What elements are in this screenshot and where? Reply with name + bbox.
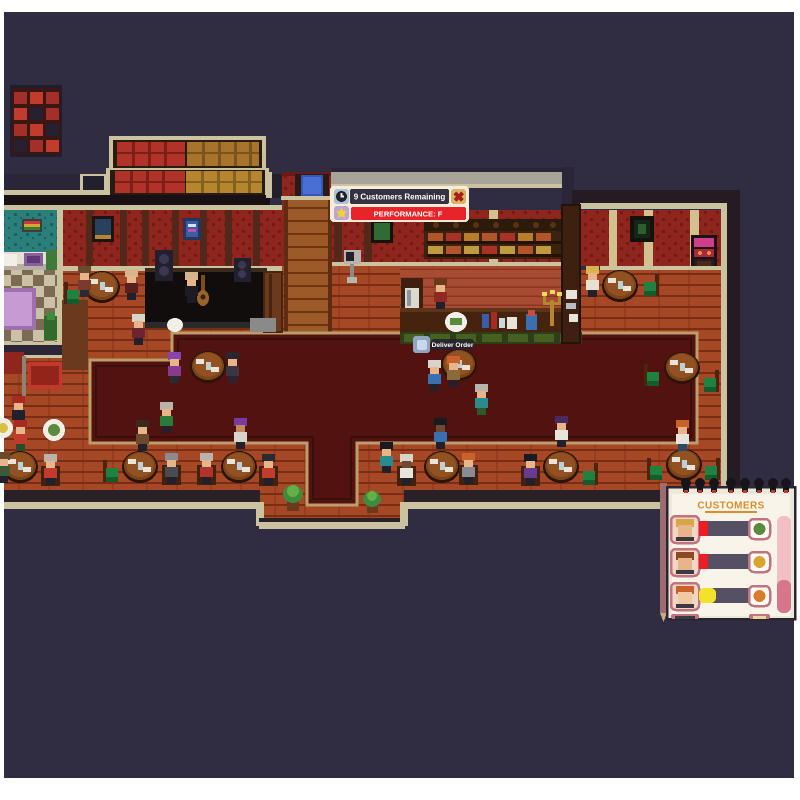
svg-text:Deliver Order: Deliver Order bbox=[432, 342, 474, 349]
svg-text:PERFORMANCE: F: PERFORMANCE: F bbox=[374, 210, 443, 219]
svg-text:9 Customers Remaining: 9 Customers Remaining bbox=[354, 193, 446, 202]
svg-text:CUSTOMERS: CUSTOMERS bbox=[697, 501, 764, 512]
